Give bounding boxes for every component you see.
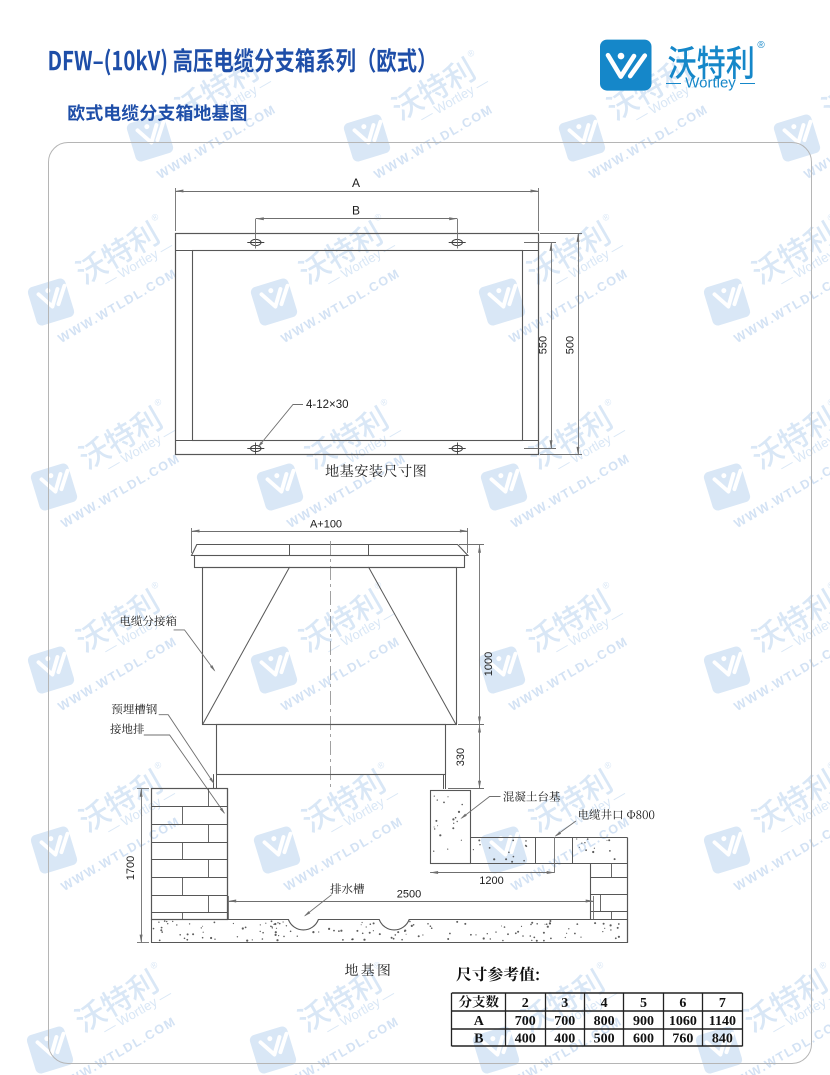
- svg-text:1060: 1060: [669, 1014, 697, 1029]
- svg-text:600: 600: [633, 1032, 654, 1047]
- svg-text:1200: 1200: [479, 875, 503, 887]
- svg-text:500: 500: [565, 336, 577, 354]
- svg-text:330: 330: [455, 748, 467, 766]
- svg-text:900: 900: [633, 1014, 654, 1029]
- svg-text:2: 2: [522, 996, 529, 1011]
- svg-text:7: 7: [719, 996, 726, 1011]
- svg-text:700: 700: [554, 1014, 575, 1029]
- svg-text:700: 700: [515, 1014, 536, 1029]
- svg-text:840: 840: [712, 1032, 733, 1047]
- svg-text:A: A: [352, 176, 360, 190]
- svg-text:800: 800: [594, 1014, 615, 1029]
- svg-text:1140: 1140: [709, 1014, 736, 1029]
- svg-text:B: B: [352, 204, 360, 218]
- svg-text:B: B: [474, 1032, 483, 1047]
- svg-text:A+100: A+100: [310, 519, 342, 531]
- svg-text:3: 3: [561, 996, 568, 1011]
- svg-text:A: A: [474, 1014, 485, 1029]
- svg-text:760: 760: [672, 1032, 693, 1047]
- svg-text:4: 4: [601, 996, 608, 1011]
- svg-text:500: 500: [594, 1032, 615, 1047]
- svg-text:1700: 1700: [125, 856, 137, 880]
- svg-text:4-12×30: 4-12×30: [306, 399, 349, 411]
- svg-text:1000: 1000: [483, 652, 495, 676]
- svg-text:400: 400: [515, 1032, 536, 1047]
- svg-text:400: 400: [554, 1032, 575, 1047]
- svg-text:6: 6: [679, 996, 686, 1011]
- svg-text:2500: 2500: [397, 889, 421, 901]
- svg-text:5: 5: [640, 996, 647, 1011]
- svg-text:550: 550: [538, 336, 550, 354]
